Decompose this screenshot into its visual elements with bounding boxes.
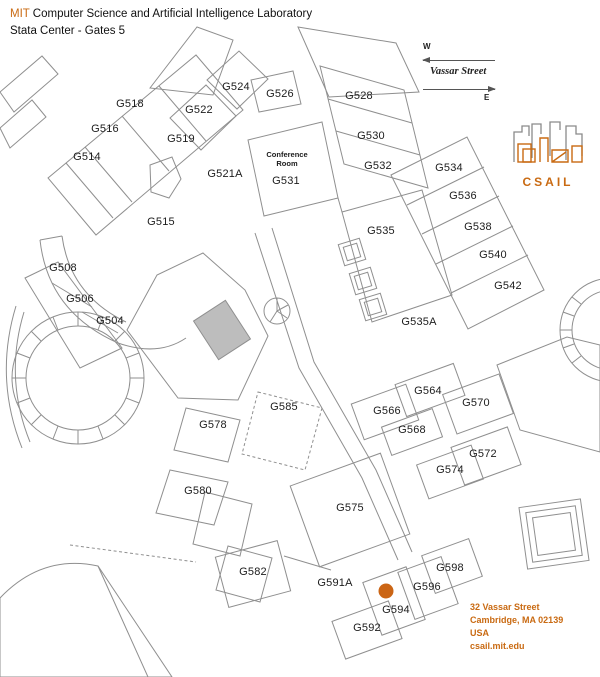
room-label-G538: G538 xyxy=(464,221,492,233)
compass-west-label: W xyxy=(423,42,431,51)
room-label-G515: G515 xyxy=(147,216,175,228)
address-street: 32 Vassar Street xyxy=(470,601,563,614)
room-label-G578: G578 xyxy=(199,419,227,431)
room-label-G521A: G521A xyxy=(207,168,242,180)
room-label-G518: G518 xyxy=(116,98,144,110)
destination-marker xyxy=(379,584,394,599)
room-label-G528: G528 xyxy=(345,90,373,102)
street-name: Vassar Street xyxy=(430,66,486,77)
east-arrow-icon xyxy=(423,89,495,90)
conference-room-label: Conference Room xyxy=(266,150,307,168)
room-label-G585: G585 xyxy=(270,401,298,413)
room-label-G570: G570 xyxy=(462,397,490,409)
room-label-G591A: G591A xyxy=(317,577,352,589)
room-label-G574: G574 xyxy=(436,464,464,476)
room-label-G522: G522 xyxy=(185,104,213,116)
room-label-G564: G564 xyxy=(414,385,442,397)
address-country: USA xyxy=(470,627,563,640)
room-label-G514: G514 xyxy=(73,151,101,163)
room-label-G524: G524 xyxy=(222,81,250,93)
room-label-G596: G596 xyxy=(413,581,441,593)
csail-logo-icon xyxy=(502,116,594,168)
room-label-G534: G534 xyxy=(435,162,463,174)
room-label-G568: G568 xyxy=(398,424,426,436)
org-prefix: MIT xyxy=(10,8,30,20)
west-arrow-icon xyxy=(423,60,495,61)
room-label-G535A: G535A xyxy=(401,316,436,328)
room-label-G531: G531 xyxy=(272,175,300,187)
website-url: csail.mit.edu xyxy=(470,640,563,653)
room-label-G530: G530 xyxy=(357,130,385,142)
room-label-G572: G572 xyxy=(469,448,497,460)
room-label-G536: G536 xyxy=(449,190,477,202)
address-city: Cambridge, MA 02139 xyxy=(470,614,563,627)
room-label-G504: G504 xyxy=(96,315,124,327)
room-label-G592: G592 xyxy=(353,622,381,634)
room-label-G526: G526 xyxy=(266,88,294,100)
room-label-G598: G598 xyxy=(436,562,464,574)
floorplan-map: MIT Computer Science and Artificial Inte… xyxy=(0,0,600,677)
room-label-G516: G516 xyxy=(91,123,119,135)
room-label-G580: G580 xyxy=(184,485,212,497)
map-subtitle: Stata Center - Gates 5 xyxy=(10,23,312,40)
compass-east-label: E xyxy=(484,93,489,102)
room-label-G506: G506 xyxy=(66,293,94,305)
room-label-G566: G566 xyxy=(373,405,401,417)
csail-logo-text: CSAIL xyxy=(502,175,594,189)
room-label-G575: G575 xyxy=(336,502,364,514)
address-block: 32 Vassar Street Cambridge, MA 02139 USA… xyxy=(470,601,563,653)
room-label-G542: G542 xyxy=(494,280,522,292)
floor-plan-drawing xyxy=(0,0,600,677)
map-header: MIT Computer Science and Artificial Inte… xyxy=(10,6,312,40)
org-name: Computer Science and Artificial Intellig… xyxy=(30,8,313,20)
room-label-G519: G519 xyxy=(167,133,195,145)
room-label-G540: G540 xyxy=(479,249,507,261)
csail-logo: CSAIL xyxy=(502,116,594,189)
room-label-G582: G582 xyxy=(239,566,267,578)
room-label-G535: G535 xyxy=(367,225,395,237)
map-title: MIT Computer Science and Artificial Inte… xyxy=(10,6,312,23)
room-label-G532: G532 xyxy=(364,160,392,172)
room-label-G508: G508 xyxy=(49,262,77,274)
room-label-G594: G594 xyxy=(382,604,410,616)
